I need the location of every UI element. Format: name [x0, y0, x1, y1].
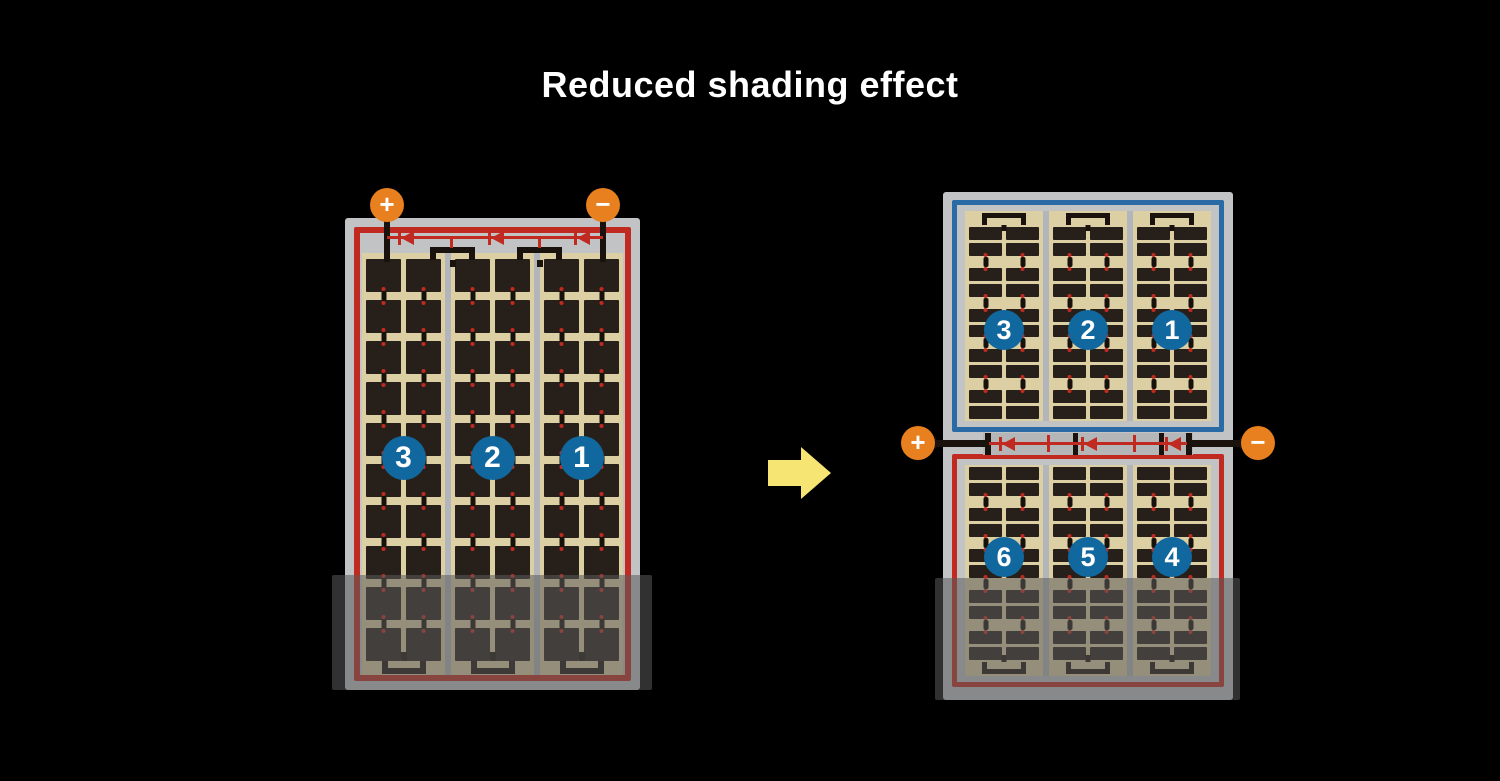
- positive-terminal-lead: [935, 440, 986, 447]
- cell-joint: [1137, 297, 1170, 309]
- solder-joint-icon: [421, 332, 426, 342]
- bypass-diode-icon: [999, 437, 1015, 451]
- negative-terminal-lead: [1190, 440, 1241, 447]
- bypass-diode-icon: [398, 231, 414, 245]
- solder-joint-icon: [510, 291, 515, 301]
- cell-joint: [969, 496, 1002, 508]
- cell-joint: [1090, 496, 1123, 508]
- solder-joint-icon: [1104, 497, 1109, 507]
- string-badge: 1: [1152, 310, 1192, 350]
- solder-joint-icon: [983, 379, 988, 389]
- solder-joint-icon: [510, 537, 515, 547]
- cell-joint: [584, 333, 619, 341]
- half-cut-solar-cell: [1006, 406, 1039, 419]
- cell-joint: [1137, 378, 1170, 390]
- solder-joint-icon: [1067, 298, 1072, 308]
- n-connector-stem: [1086, 225, 1091, 231]
- solder-joint-icon: [599, 332, 604, 342]
- cell-joint: [1053, 378, 1086, 390]
- n-connector-stem: [450, 260, 456, 267]
- cell-joint: [584, 497, 619, 505]
- cell-joint: [366, 292, 401, 300]
- positive-terminal: +: [901, 426, 935, 460]
- cell-joint: [544, 415, 579, 423]
- half-cut-solar-cell: [1006, 467, 1039, 480]
- cell-joint: [455, 292, 490, 300]
- solder-joint-icon: [470, 537, 475, 547]
- solder-joint-icon: [421, 537, 426, 547]
- cell-joint: [1174, 256, 1207, 268]
- cell-joint: [1006, 378, 1039, 390]
- cell-joint: [1174, 496, 1207, 508]
- arrow-head: [801, 447, 831, 499]
- cell-joint: [544, 538, 579, 546]
- cell-area: 321: [965, 211, 1211, 421]
- cell-joint: [455, 374, 490, 382]
- cell-joint: [1174, 378, 1207, 390]
- cell-string-group: 3: [965, 211, 1043, 421]
- solder-joint-icon: [381, 332, 386, 342]
- n-connector-stem: [1170, 225, 1175, 231]
- cell-joint: [1090, 297, 1123, 309]
- bypass-diode-icon: [574, 231, 590, 245]
- solder-joint-icon: [421, 496, 426, 506]
- cell-joint: [969, 297, 1002, 309]
- arrow-right-icon: [768, 447, 832, 499]
- cell-joint: [366, 374, 401, 382]
- solder-joint-icon: [983, 257, 988, 267]
- solder-joint-icon: [470, 373, 475, 383]
- solder-joint-icon: [1151, 298, 1156, 308]
- solder-joint-icon: [1104, 298, 1109, 308]
- solder-joint-icon: [1151, 379, 1156, 389]
- cell-joint: [1137, 496, 1170, 508]
- solder-joint-icon: [1020, 379, 1025, 389]
- cell-joint: [406, 374, 441, 382]
- half-cut-solar-cell: [1137, 227, 1170, 240]
- cell-joint: [1090, 256, 1123, 268]
- solder-joint-icon: [599, 373, 604, 383]
- cell-joint: [1053, 496, 1086, 508]
- string-badge: 3: [984, 310, 1024, 350]
- half-cut-solar-cell: [1174, 406, 1207, 419]
- bus-branch-tick: [450, 237, 453, 248]
- half-cut-solar-cell: [1090, 227, 1123, 240]
- solder-joint-icon: [470, 414, 475, 424]
- diode-arrow: [401, 231, 414, 245]
- cell-joint: [544, 333, 579, 341]
- solder-joint-icon: [559, 332, 564, 342]
- solder-joint-icon: [1020, 298, 1025, 308]
- solder-joint-icon: [381, 373, 386, 383]
- solder-joint-icon: [1151, 497, 1156, 507]
- half-cut-solar-cell: [1137, 467, 1170, 480]
- solder-joint-icon: [381, 496, 386, 506]
- half-cut-solar-cell: [1174, 467, 1207, 480]
- solder-joint-icon: [381, 291, 386, 301]
- cell-joint: [1006, 297, 1039, 309]
- solder-joint-icon: [599, 291, 604, 301]
- solder-joint-icon: [1104, 257, 1109, 267]
- half-cut-solar-cell: [1006, 227, 1039, 240]
- solder-joint-icon: [1188, 379, 1193, 389]
- top-half-string-border-blue: 321: [952, 200, 1224, 432]
- cell-joint: [406, 333, 441, 341]
- cell-joint: [495, 497, 530, 505]
- title: Reduced shading effect: [0, 64, 1500, 106]
- solder-joint-icon: [510, 373, 515, 383]
- diode-arrow: [1084, 437, 1097, 451]
- solder-joint-icon: [599, 496, 604, 506]
- string-n-connector: [1066, 213, 1110, 225]
- bypass-diode-icon: [1081, 437, 1097, 451]
- cell-joint: [969, 378, 1002, 390]
- half-cut-solar-cell: [1174, 227, 1207, 240]
- solder-joint-icon: [1104, 379, 1109, 389]
- diagram-canvas: Reduced shading effect 321+− 321654+−: [0, 0, 1500, 781]
- solder-joint-icon: [983, 497, 988, 507]
- bus-branch-tick: [1133, 435, 1136, 452]
- positive-terminal: +: [370, 188, 404, 222]
- half-cut-solar-cell: [969, 227, 1002, 240]
- cell-joint: [1174, 297, 1207, 309]
- solder-joint-icon: [421, 291, 426, 301]
- half-cut-solar-cell: [969, 406, 1002, 419]
- cell-joint: [1137, 256, 1170, 268]
- cell-joint: [406, 415, 441, 423]
- solder-joint-icon: [510, 414, 515, 424]
- solder-joint-icon: [1188, 298, 1193, 308]
- cell-joint: [455, 538, 490, 546]
- bypass-diode-icon: [1165, 437, 1181, 451]
- cell-joint: [544, 374, 579, 382]
- string-n-connector: [430, 247, 475, 260]
- solder-joint-icon: [1067, 379, 1072, 389]
- half-cut-solar-cell: [969, 467, 1002, 480]
- string-badge: 4: [1152, 537, 1192, 577]
- shading-overlay: [332, 575, 652, 690]
- cell-joint: [495, 374, 530, 382]
- cell-joint: [455, 497, 490, 505]
- cell-joint: [406, 497, 441, 505]
- string-badge: 2: [471, 436, 515, 480]
- cell-joint: [584, 538, 619, 546]
- cell-joint: [366, 415, 401, 423]
- half-cut-solar-cell: [1053, 406, 1086, 419]
- solder-joint-icon: [510, 332, 515, 342]
- cell-joint: [1006, 256, 1039, 268]
- solder-joint-icon: [1151, 257, 1156, 267]
- bus-branch-tick: [538, 237, 541, 248]
- solder-joint-icon: [470, 291, 475, 301]
- half-cut-solar-cell: [1053, 467, 1086, 480]
- cell-string-group: 1: [1133, 211, 1211, 421]
- cell-joint: [584, 415, 619, 423]
- string-badge: 1: [560, 436, 604, 480]
- cell-joint: [455, 333, 490, 341]
- solder-joint-icon: [381, 414, 386, 424]
- panel-before-full-cell: 321+−: [345, 218, 640, 690]
- cell-joint: [366, 497, 401, 505]
- cell-joint: [495, 333, 530, 341]
- solder-joint-icon: [510, 496, 515, 506]
- shading-overlay: [935, 578, 1240, 700]
- diode-arrow: [1002, 437, 1015, 451]
- half-cut-solar-cell: [1053, 227, 1086, 240]
- cell-joint: [1053, 256, 1086, 268]
- string-n-connector: [517, 247, 562, 260]
- string-n-connector: [982, 213, 1026, 225]
- solder-joint-icon: [599, 414, 604, 424]
- cell-joint: [584, 292, 619, 300]
- solder-joint-icon: [1188, 497, 1193, 507]
- solder-joint-icon: [470, 332, 475, 342]
- negative-terminal: −: [586, 188, 620, 222]
- half-cut-solar-cell: [1090, 467, 1123, 480]
- diode-arrow: [1168, 437, 1181, 451]
- cell-joint: [544, 292, 579, 300]
- string-n-connector: [1150, 213, 1194, 225]
- cell-joint: [1006, 496, 1039, 508]
- cell-joint: [969, 256, 1002, 268]
- solder-joint-icon: [1188, 257, 1193, 267]
- solder-joint-icon: [1020, 497, 1025, 507]
- solder-joint-icon: [559, 537, 564, 547]
- cell-joint: [1053, 297, 1086, 309]
- diode-arrow: [577, 231, 590, 245]
- string-badge: 2: [1068, 310, 1108, 350]
- cell-joint: [495, 415, 530, 423]
- negative-terminal: −: [1241, 426, 1275, 460]
- bus-branch-tick: [1047, 435, 1050, 452]
- solder-joint-icon: [470, 496, 475, 506]
- half-cut-solar-cell: [1137, 406, 1170, 419]
- cell-joint: [366, 333, 401, 341]
- n-connector-stem: [537, 260, 543, 267]
- bypass-diode-icon: [488, 231, 504, 245]
- solder-joint-icon: [1067, 257, 1072, 267]
- solder-joint-icon: [559, 373, 564, 383]
- half-cut-solar-cell: [1090, 406, 1123, 419]
- cell-joint: [495, 538, 530, 546]
- n-connector-stem: [1002, 225, 1007, 231]
- solder-joint-icon: [559, 496, 564, 506]
- arrow-body: [768, 460, 801, 486]
- cell-joint: [455, 415, 490, 423]
- solder-joint-icon: [381, 537, 386, 547]
- diode-arrow: [491, 231, 504, 245]
- cell-joint: [406, 538, 441, 546]
- cell-joint: [584, 374, 619, 382]
- cell-joint: [366, 538, 401, 546]
- solder-joint-icon: [421, 373, 426, 383]
- solder-joint-icon: [1020, 257, 1025, 267]
- solder-joint-icon: [983, 298, 988, 308]
- cell-string-group: 2: [1049, 211, 1127, 421]
- solder-joint-icon: [421, 414, 426, 424]
- panel-after-split-cell: 321654+−: [943, 192, 1233, 700]
- solder-joint-icon: [559, 414, 564, 424]
- string-badge: 3: [382, 436, 426, 480]
- cell-joint: [495, 292, 530, 300]
- cell-joint: [406, 292, 441, 300]
- cell-joint: [544, 497, 579, 505]
- string-badge: 5: [1068, 537, 1108, 577]
- solder-joint-icon: [559, 291, 564, 301]
- solder-joint-icon: [1067, 497, 1072, 507]
- cell-joint: [1090, 378, 1123, 390]
- string-badge: 6: [984, 537, 1024, 577]
- solder-joint-icon: [599, 537, 604, 547]
